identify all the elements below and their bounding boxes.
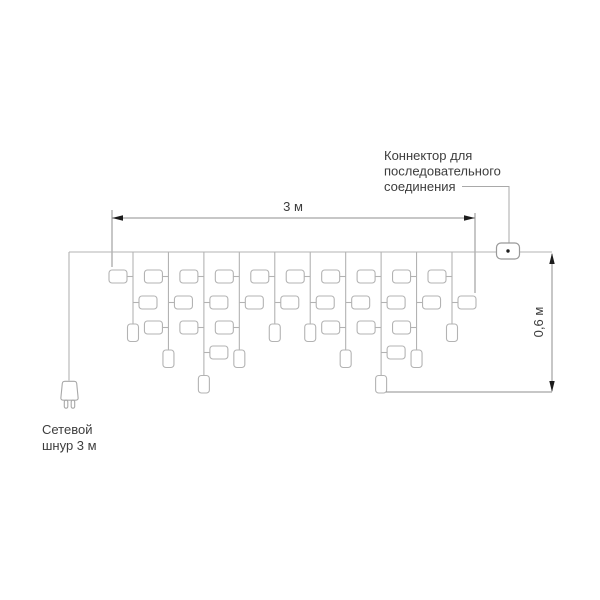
end-bulb-icon: [234, 350, 245, 368]
height-dimension: 0,6 м: [386, 253, 555, 392]
end-bulb-icon: [376, 376, 387, 394]
bulb-icon: [286, 270, 304, 283]
bulb-icon: [215, 270, 233, 283]
icicle-garland-diagram: 3 м Коннектор для последовательного соед…: [0, 0, 600, 600]
power-plug-icon: [61, 381, 78, 400]
garland-drop: [144, 252, 192, 368]
end-bulb-icon: [163, 350, 174, 368]
bulb-icon: [174, 296, 192, 309]
height-dimension-label: 0,6 м: [531, 307, 546, 338]
connector-callout: Коннектор для последовательного соединен…: [384, 148, 509, 243]
arrow-down-icon: [549, 381, 554, 392]
end-bulb-icon: [269, 324, 280, 342]
bulb-icon: [180, 321, 198, 334]
power-cord: [61, 252, 78, 408]
bulb-icon: [245, 296, 263, 309]
arrow-right-icon: [464, 215, 475, 221]
bulb-icon: [393, 270, 411, 283]
connector-callout-line1: Коннектор для: [384, 148, 472, 163]
bulb-icon: [393, 321, 411, 334]
bulb-icon: [387, 346, 405, 359]
bulb-icon: [210, 346, 228, 359]
bulb-icon: [251, 270, 269, 283]
connector-callout-line3: соединения: [384, 179, 456, 194]
bulb-icon: [352, 296, 370, 309]
bulb-icon: [458, 296, 476, 309]
width-dimension-label: 3 м: [283, 199, 303, 214]
arrow-up-icon: [549, 253, 554, 264]
bulb-icon: [139, 296, 157, 309]
connector-callout-line2: последовательного: [384, 164, 501, 179]
end-bulb-icon: [198, 376, 209, 394]
end-bulb-icon: [411, 350, 422, 368]
bulb-icon: [322, 321, 340, 334]
bulb-icon: [180, 270, 198, 283]
bulb-icon: [210, 296, 228, 309]
end-bulb-icon: [305, 324, 316, 342]
end-bulb-icon: [340, 350, 351, 368]
bulb-icon: [357, 270, 375, 283]
connector-dot-icon: [506, 249, 509, 252]
power-cord-label: Сетевой шнур 3 м: [42, 422, 97, 453]
bulb-icon: [144, 321, 162, 334]
power-cord-label-line1: Сетевой: [42, 422, 92, 437]
garland-drop: [322, 252, 370, 368]
bulb-icon: [322, 270, 340, 283]
bulb-icon: [281, 296, 299, 309]
power-cord-label-line2: шнур 3 м: [42, 438, 97, 453]
connector-leader-line: [462, 187, 509, 243]
bulb-icon: [423, 296, 441, 309]
end-bulb-icon: [128, 324, 139, 342]
arrow-left-icon: [112, 215, 123, 221]
bulb-icon: [144, 270, 162, 283]
product-diagram-page: 3 м Коннектор для последовательного соед…: [0, 0, 600, 600]
bulb-icon: [316, 296, 334, 309]
bulb-icon: [387, 296, 405, 309]
garland-drops: [109, 252, 476, 393]
bulb-icon: [357, 321, 375, 334]
bulb-icon: [109, 270, 127, 283]
bulb-icon: [428, 270, 446, 283]
plug-prong-left-icon: [64, 400, 68, 408]
plug-prong-right-icon: [71, 400, 75, 408]
end-bulb-icon: [446, 324, 457, 342]
series-connector: [497, 243, 520, 259]
bulb-icon: [215, 321, 233, 334]
